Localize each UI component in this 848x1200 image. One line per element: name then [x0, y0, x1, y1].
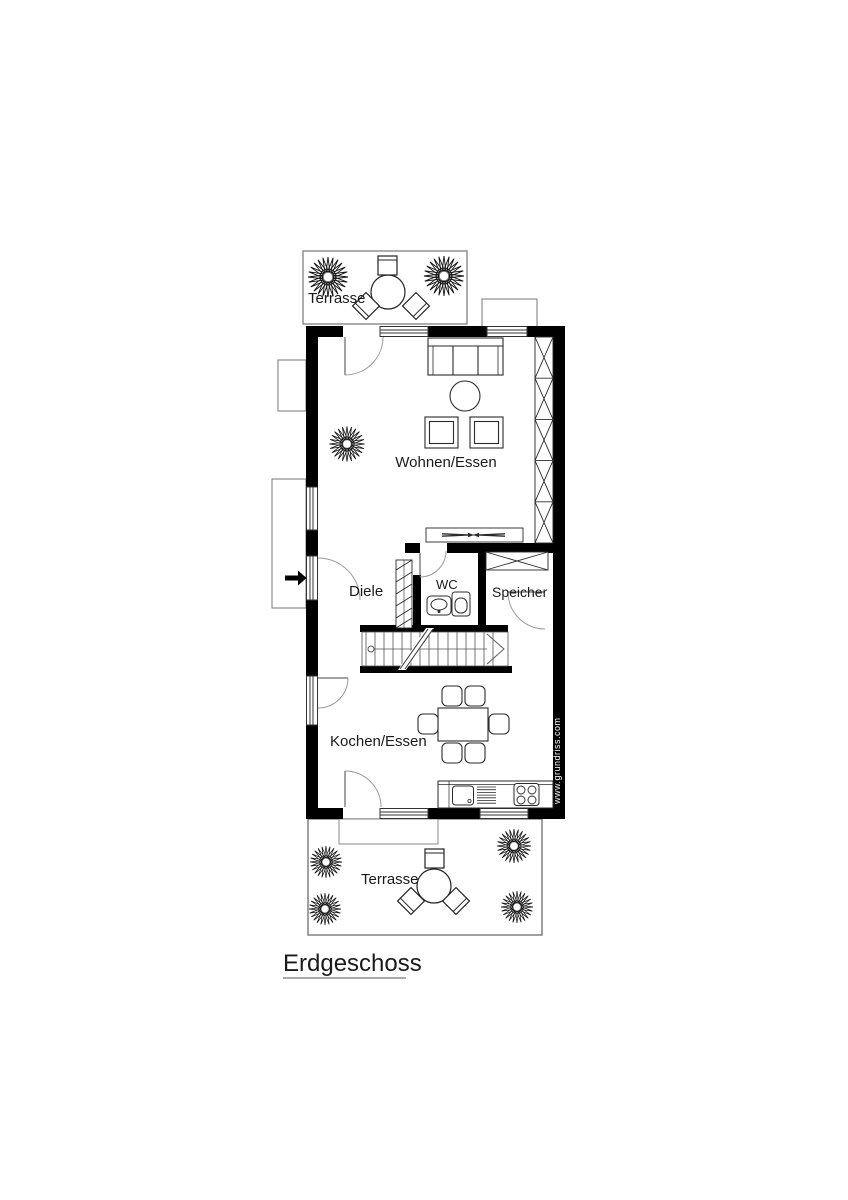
window-icon	[307, 556, 318, 600]
room-label-wc: WC	[436, 577, 458, 592]
stairs-icon	[362, 628, 508, 670]
side-table-icon	[450, 381, 480, 411]
washbasin-icon	[427, 596, 451, 615]
wardrobe-icon	[535, 337, 553, 543]
plant-icon	[323, 420, 371, 468]
armchair-icon	[470, 417, 503, 448]
entrance-porch	[272, 479, 306, 608]
door-icon	[318, 678, 348, 708]
window-icon	[480, 809, 528, 819]
terrace-bottom	[303, 819, 542, 935]
room-label-kochen-essen: Kochen/Essen	[330, 733, 427, 750]
watermark: www.grundriss.com	[552, 717, 562, 805]
floor-plan-drawing: Terrasse Wohnen/Essen Diele WC Speicher …	[0, 0, 848, 1200]
toilet-icon	[452, 592, 470, 616]
door-icon	[345, 771, 381, 807]
coat-rack-icon	[396, 560, 412, 628]
dining-set	[418, 686, 509, 763]
chair-icon	[442, 743, 462, 763]
dining-table-icon	[438, 708, 488, 741]
chair-icon	[489, 714, 509, 734]
sink-icon	[453, 786, 474, 805]
room-label-diele: Diele	[349, 583, 383, 600]
chair-icon	[425, 849, 444, 868]
window-icon	[307, 676, 318, 725]
kitchen-counter-icon	[438, 781, 553, 808]
room-label-terrasse-top: Terrasse	[308, 290, 366, 307]
cooktop-icon	[514, 784, 539, 806]
room-label-speicher: Speicher	[492, 584, 548, 600]
chair-icon	[442, 686, 462, 706]
page-title: Erdgeschoss	[283, 950, 422, 977]
room-label-wohnen-essen: Wohnen/Essen	[395, 454, 496, 471]
window-icon	[307, 487, 318, 530]
window-icon	[380, 327, 428, 337]
chair-icon	[465, 686, 485, 706]
sofa-icon	[428, 338, 503, 375]
terrace-top	[301, 249, 472, 324]
bay-left-upper	[278, 360, 306, 411]
terrace-step	[339, 819, 438, 844]
bay-top-right	[482, 299, 537, 327]
drainer-icon	[477, 787, 496, 803]
shelf-icon	[486, 552, 548, 570]
door-icon	[345, 337, 383, 375]
chair-icon	[378, 256, 397, 275]
tv-board-icon	[426, 528, 523, 542]
chair-icon	[465, 743, 485, 763]
window-icon	[487, 327, 527, 337]
armchair-icon	[425, 417, 458, 448]
room-label-terrasse-bottom: Terrasse	[361, 871, 419, 888]
window-icon	[380, 809, 428, 819]
floor-plan-page: Terrasse Wohnen/Essen Diele WC Speicher …	[0, 0, 848, 1200]
chair-icon	[418, 714, 438, 734]
door-icon	[420, 551, 446, 577]
